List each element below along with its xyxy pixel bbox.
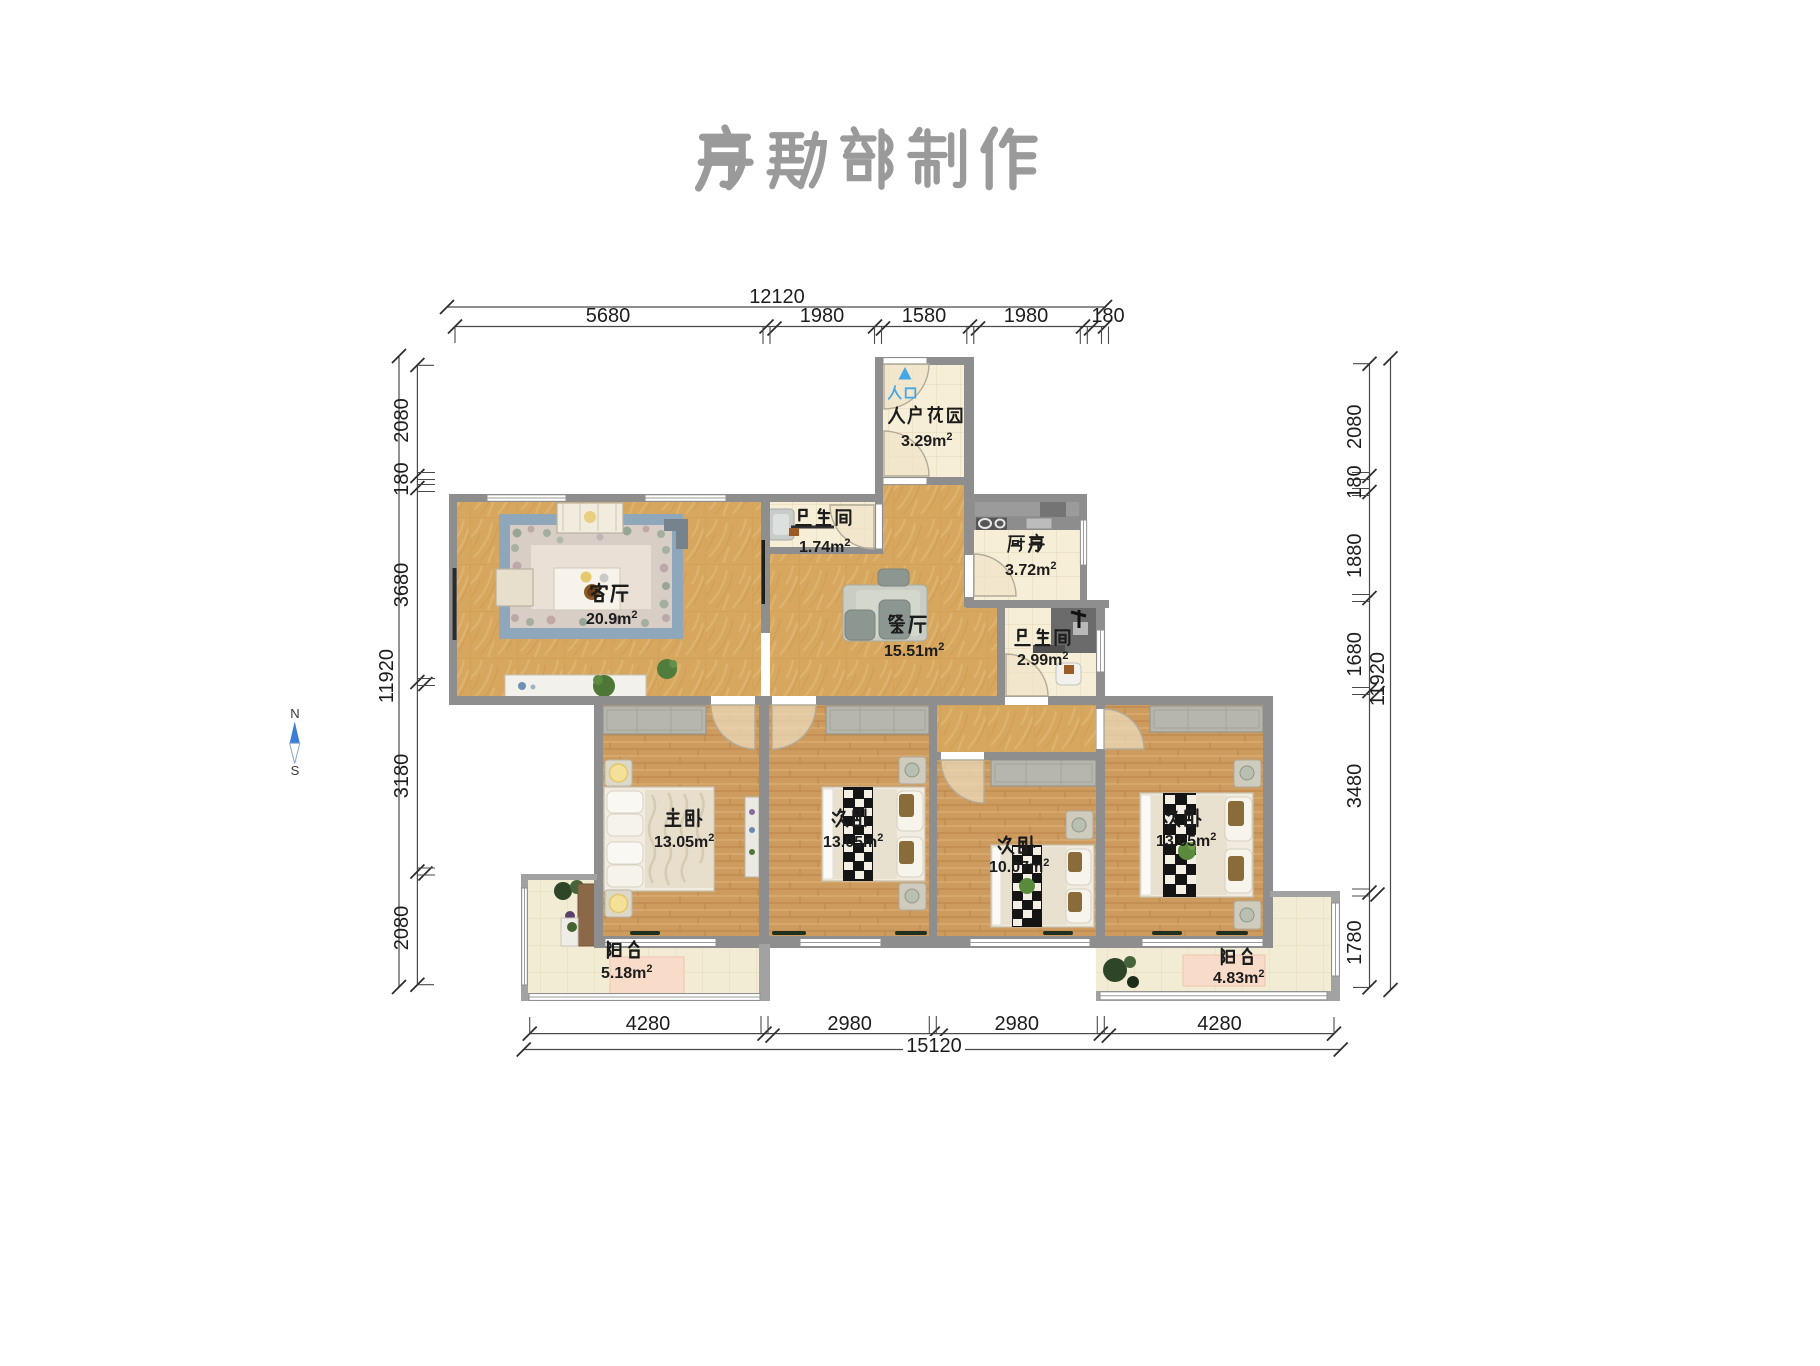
svg-text:5680: 5680 [586, 305, 631, 327]
svg-text:1680: 1680 [1344, 632, 1366, 677]
svg-text:15120: 15120 [906, 1035, 962, 1057]
svg-text:11920: 11920 [376, 649, 398, 703]
svg-text:180: 180 [1344, 465, 1366, 498]
svg-text:2.99m2: 2.99m2 [1017, 650, 1069, 669]
svg-text:180: 180 [391, 462, 413, 495]
svg-text:5.18m2: 5.18m2 [601, 963, 653, 982]
svg-text:4280: 4280 [626, 1013, 671, 1035]
svg-text:1980: 1980 [1004, 305, 1049, 327]
svg-text:4280: 4280 [1197, 1013, 1242, 1035]
svg-text:3680: 3680 [391, 563, 413, 608]
svg-text:3180: 3180 [391, 754, 413, 799]
svg-text:2080: 2080 [391, 398, 413, 443]
svg-text:180: 180 [1091, 305, 1124, 327]
svg-text:1880: 1880 [1344, 533, 1366, 578]
svg-text:11920: 11920 [1367, 652, 1389, 706]
svg-text:1.74m2: 1.74m2 [799, 537, 851, 556]
svg-text:10.07m2: 10.07m2 [989, 857, 1049, 876]
svg-text:3.29m2: 3.29m2 [901, 431, 953, 450]
svg-text:3.72m2: 3.72m2 [1005, 560, 1057, 579]
svg-text:2980: 2980 [827, 1013, 872, 1035]
svg-text:1580: 1580 [902, 305, 947, 327]
svg-text:S: S [291, 763, 300, 778]
svg-text:N: N [290, 706, 299, 721]
svg-text:4.83m2: 4.83m2 [1213, 968, 1265, 987]
svg-text:3480: 3480 [1344, 764, 1366, 809]
svg-text:1780: 1780 [1344, 920, 1366, 965]
svg-text:20.9m2: 20.9m2 [586, 609, 638, 628]
svg-text:13.05m2: 13.05m2 [654, 832, 714, 851]
svg-text:2080: 2080 [1344, 405, 1366, 450]
svg-text:12120: 12120 [749, 286, 805, 308]
svg-text:2080: 2080 [391, 906, 413, 951]
svg-text:15.51m2: 15.51m2 [884, 641, 944, 660]
svg-text:13.05m2: 13.05m2 [1156, 831, 1216, 850]
svg-text:2980: 2980 [995, 1013, 1040, 1035]
svg-text:1980: 1980 [800, 305, 845, 327]
svg-text:13.05m2: 13.05m2 [823, 832, 883, 851]
